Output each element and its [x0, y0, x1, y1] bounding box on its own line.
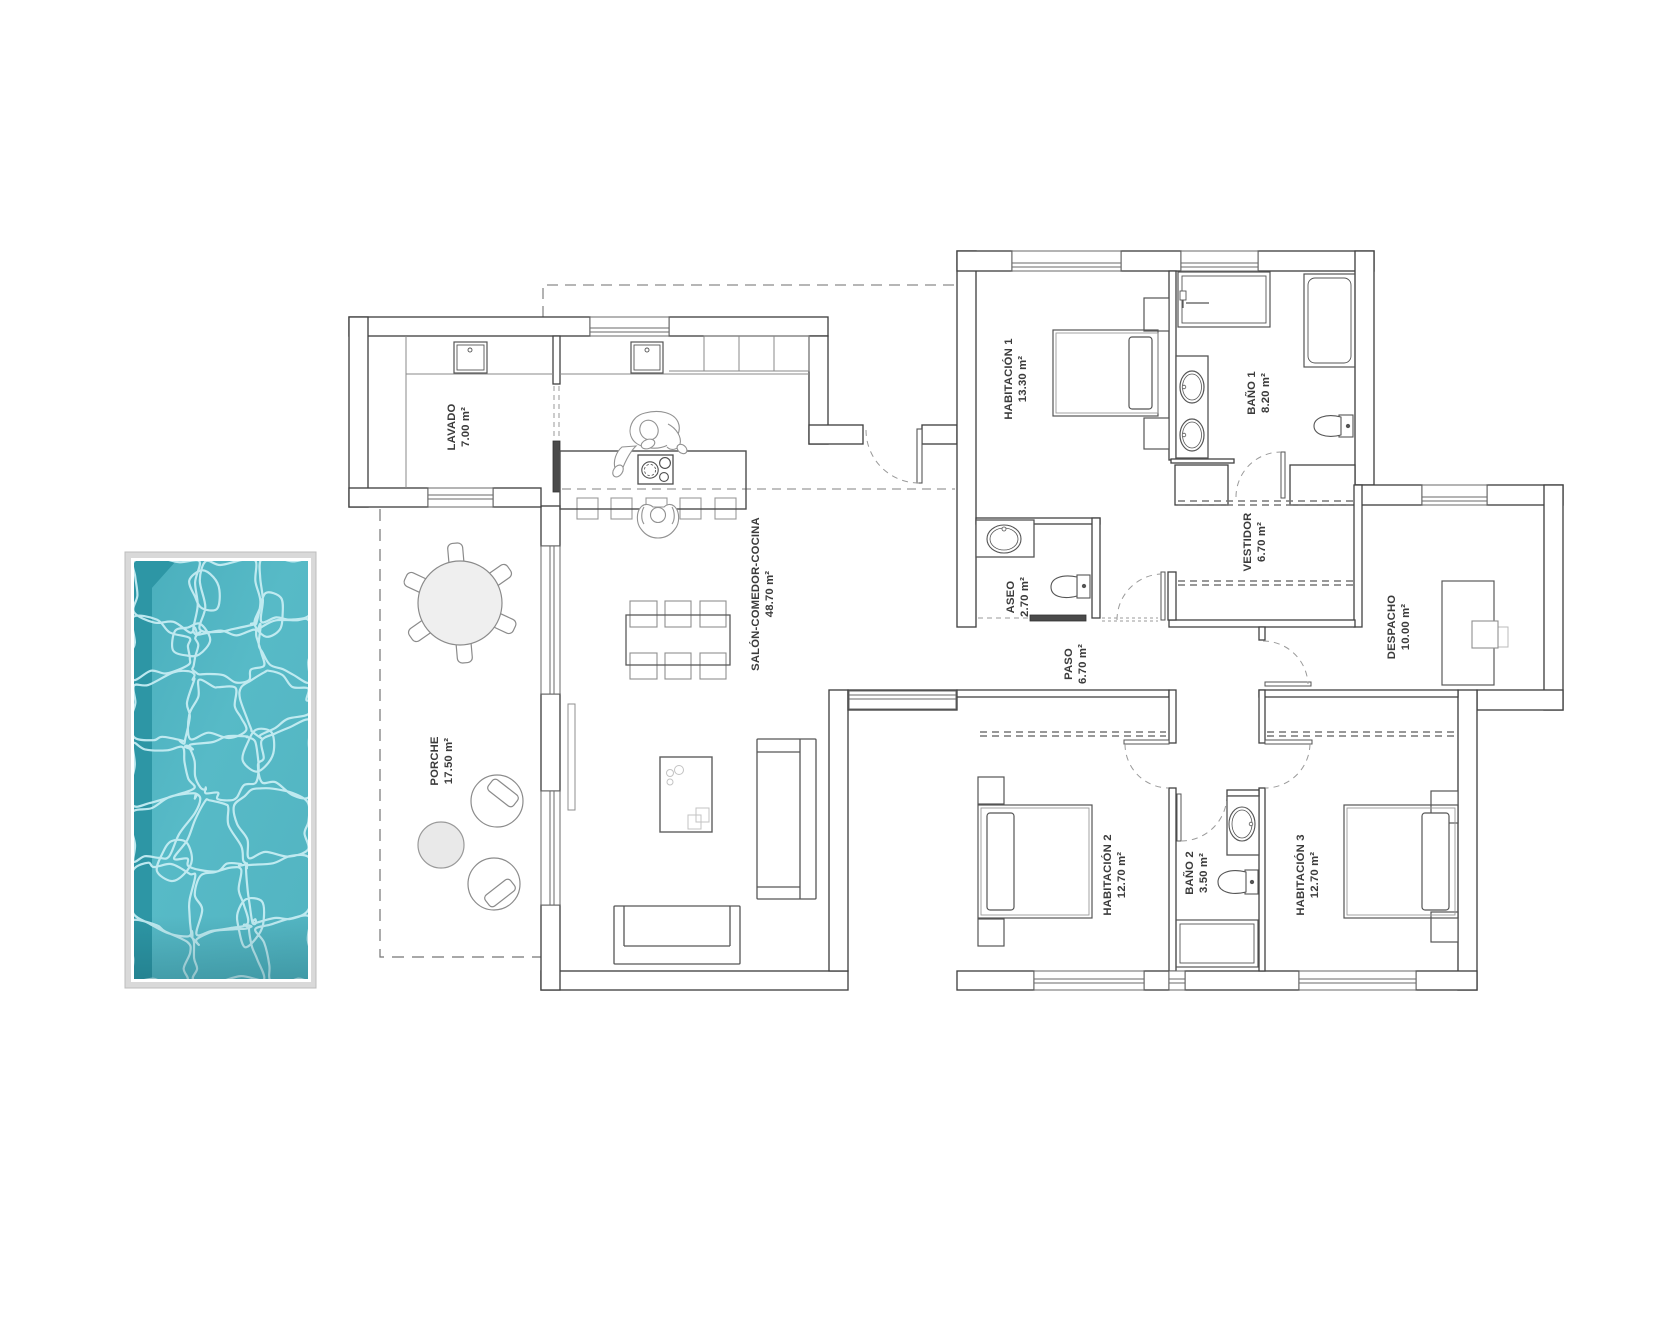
svg-text:HABITACIÓN 1: HABITACIÓN 1	[1002, 338, 1015, 419]
svg-text:BAÑO 2: BAÑO 2	[1183, 851, 1196, 895]
svg-text:PASO: PASO	[1063, 648, 1075, 680]
svg-text:48.70 m²: 48.70 m²	[764, 571, 776, 618]
svg-text:DESPACHO: DESPACHO	[1386, 595, 1398, 659]
svg-text:12.70 m²: 12.70 m²	[1116, 852, 1128, 899]
svg-text:HABITACIÓN 3: HABITACIÓN 3	[1294, 834, 1307, 915]
svg-text:6.70 m²: 6.70 m²	[1077, 644, 1089, 684]
svg-text:13.30 m²: 13.30 m²	[1017, 356, 1029, 403]
svg-text:6.70 m²: 6.70 m²	[1256, 522, 1268, 562]
svg-text:LAVADO: LAVADO	[446, 403, 458, 450]
svg-text:ASEO: ASEO	[1005, 581, 1017, 614]
svg-text:10.00 m²: 10.00 m²	[1400, 604, 1412, 651]
svg-text:17.50 m²: 17.50 m²	[443, 738, 455, 785]
svg-text:2.70 m²: 2.70 m²	[1019, 577, 1031, 617]
svg-text:SALÓN-COMEDOR-COCINA: SALÓN-COMEDOR-COCINA	[749, 517, 762, 671]
svg-text:HABITACIÓN 2: HABITACIÓN 2	[1101, 834, 1114, 915]
svg-text:8.20 m²: 8.20 m²	[1260, 373, 1272, 413]
svg-text:BAÑO 1: BAÑO 1	[1245, 371, 1258, 415]
svg-text:VESTIDOR: VESTIDOR	[1242, 513, 1254, 572]
svg-text:7.00 m²: 7.00 m²	[460, 407, 472, 447]
svg-text:3.50 m²: 3.50 m²	[1198, 853, 1210, 893]
svg-text:PORCHE: PORCHE	[429, 736, 441, 786]
svg-text:12.70 m²: 12.70 m²	[1309, 852, 1321, 899]
